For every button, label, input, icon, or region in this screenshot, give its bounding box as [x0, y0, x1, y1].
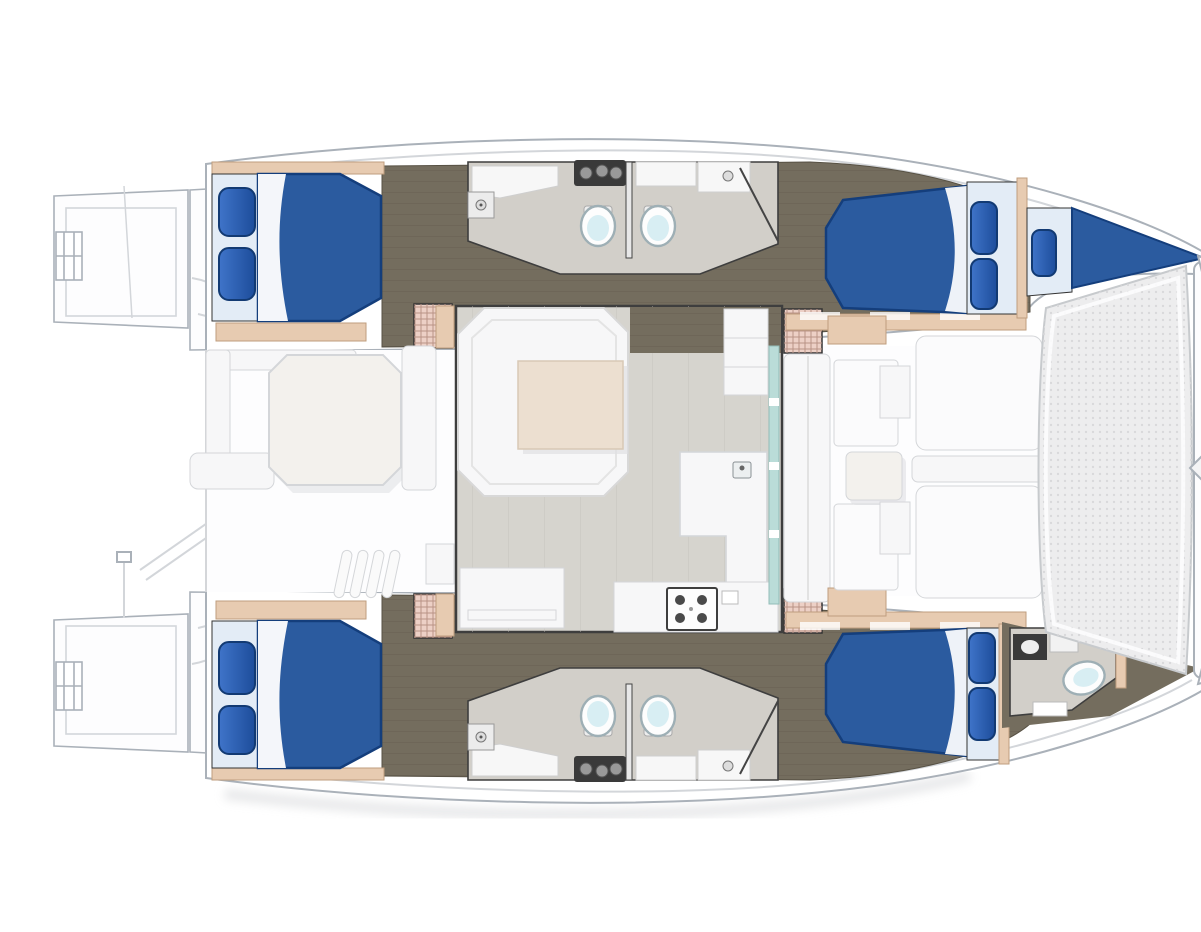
trampoline-mesh — [1039, 266, 1193, 674]
catamaran-floor-plan: Catamaran yacht deck and accommodation f… — [40, 16, 1201, 916]
pillow — [1032, 230, 1056, 276]
shower-fitting — [468, 724, 494, 750]
cockpit-table — [269, 355, 401, 485]
cockpit-bench — [206, 350, 230, 462]
vanity — [636, 756, 696, 780]
sun-pad — [916, 336, 1042, 450]
headboard-trim — [212, 768, 384, 780]
toilet — [641, 206, 675, 246]
louver-door — [436, 594, 454, 636]
pillow — [219, 188, 255, 236]
side-step-locker — [828, 588, 886, 616]
deck-locker — [880, 366, 910, 418]
companionway-steps-aft — [414, 594, 454, 638]
double-bed-mattress — [826, 629, 967, 756]
sun-pad — [916, 486, 1042, 598]
sink-basin — [1021, 640, 1039, 654]
bathrooms-starboard — [468, 160, 778, 274]
stern-platform-starboard — [54, 186, 188, 328]
deck-locker — [880, 502, 910, 554]
companionway-steps-aft — [414, 304, 454, 348]
saloon-table — [518, 361, 623, 449]
cockpit-bench — [402, 346, 436, 490]
boarding-ladder — [56, 232, 82, 280]
stove — [667, 588, 717, 630]
cockpit-seat — [190, 453, 274, 489]
faucet-knobs — [580, 763, 622, 777]
front-glass-door — [769, 346, 779, 604]
pillow — [219, 248, 255, 300]
sink-drain — [723, 761, 733, 771]
galley-locker — [722, 591, 738, 604]
aft-cockpit — [190, 346, 456, 599]
side-step-locker — [828, 316, 886, 344]
toilet — [641, 696, 675, 736]
headboard-trim — [212, 162, 384, 174]
bulkhead — [1017, 178, 1027, 318]
cabin-shelf — [216, 601, 366, 619]
shower-fitting — [468, 192, 494, 218]
pillow — [219, 642, 255, 694]
chart-cabinet — [460, 568, 564, 628]
saloon — [456, 306, 782, 632]
bow-trampoline — [1039, 256, 1201, 684]
pillow — [219, 706, 255, 754]
floor-plan-svg — [40, 16, 1201, 916]
forward-table — [846, 452, 902, 500]
pillow — [971, 202, 997, 254]
helm-module — [426, 544, 454, 584]
toilet — [581, 696, 615, 736]
walkway — [912, 456, 1044, 482]
sink-drain — [723, 171, 733, 181]
pillow — [971, 259, 997, 309]
locker — [1033, 702, 1067, 716]
toilet — [581, 206, 615, 246]
fridge-cabinet — [724, 309, 768, 395]
dividing-wall — [626, 684, 632, 780]
pillow — [969, 688, 995, 740]
pillow — [969, 633, 995, 683]
boarding-ladder — [56, 662, 82, 710]
dividing-wall — [626, 162, 632, 258]
double-bed-mattress — [826, 186, 967, 313]
louver-door — [436, 306, 454, 348]
faucet — [740, 466, 745, 471]
bathrooms-port — [468, 668, 778, 782]
cabin-shelf — [216, 323, 366, 341]
faucet-knobs — [580, 165, 622, 179]
vanity — [636, 162, 696, 186]
